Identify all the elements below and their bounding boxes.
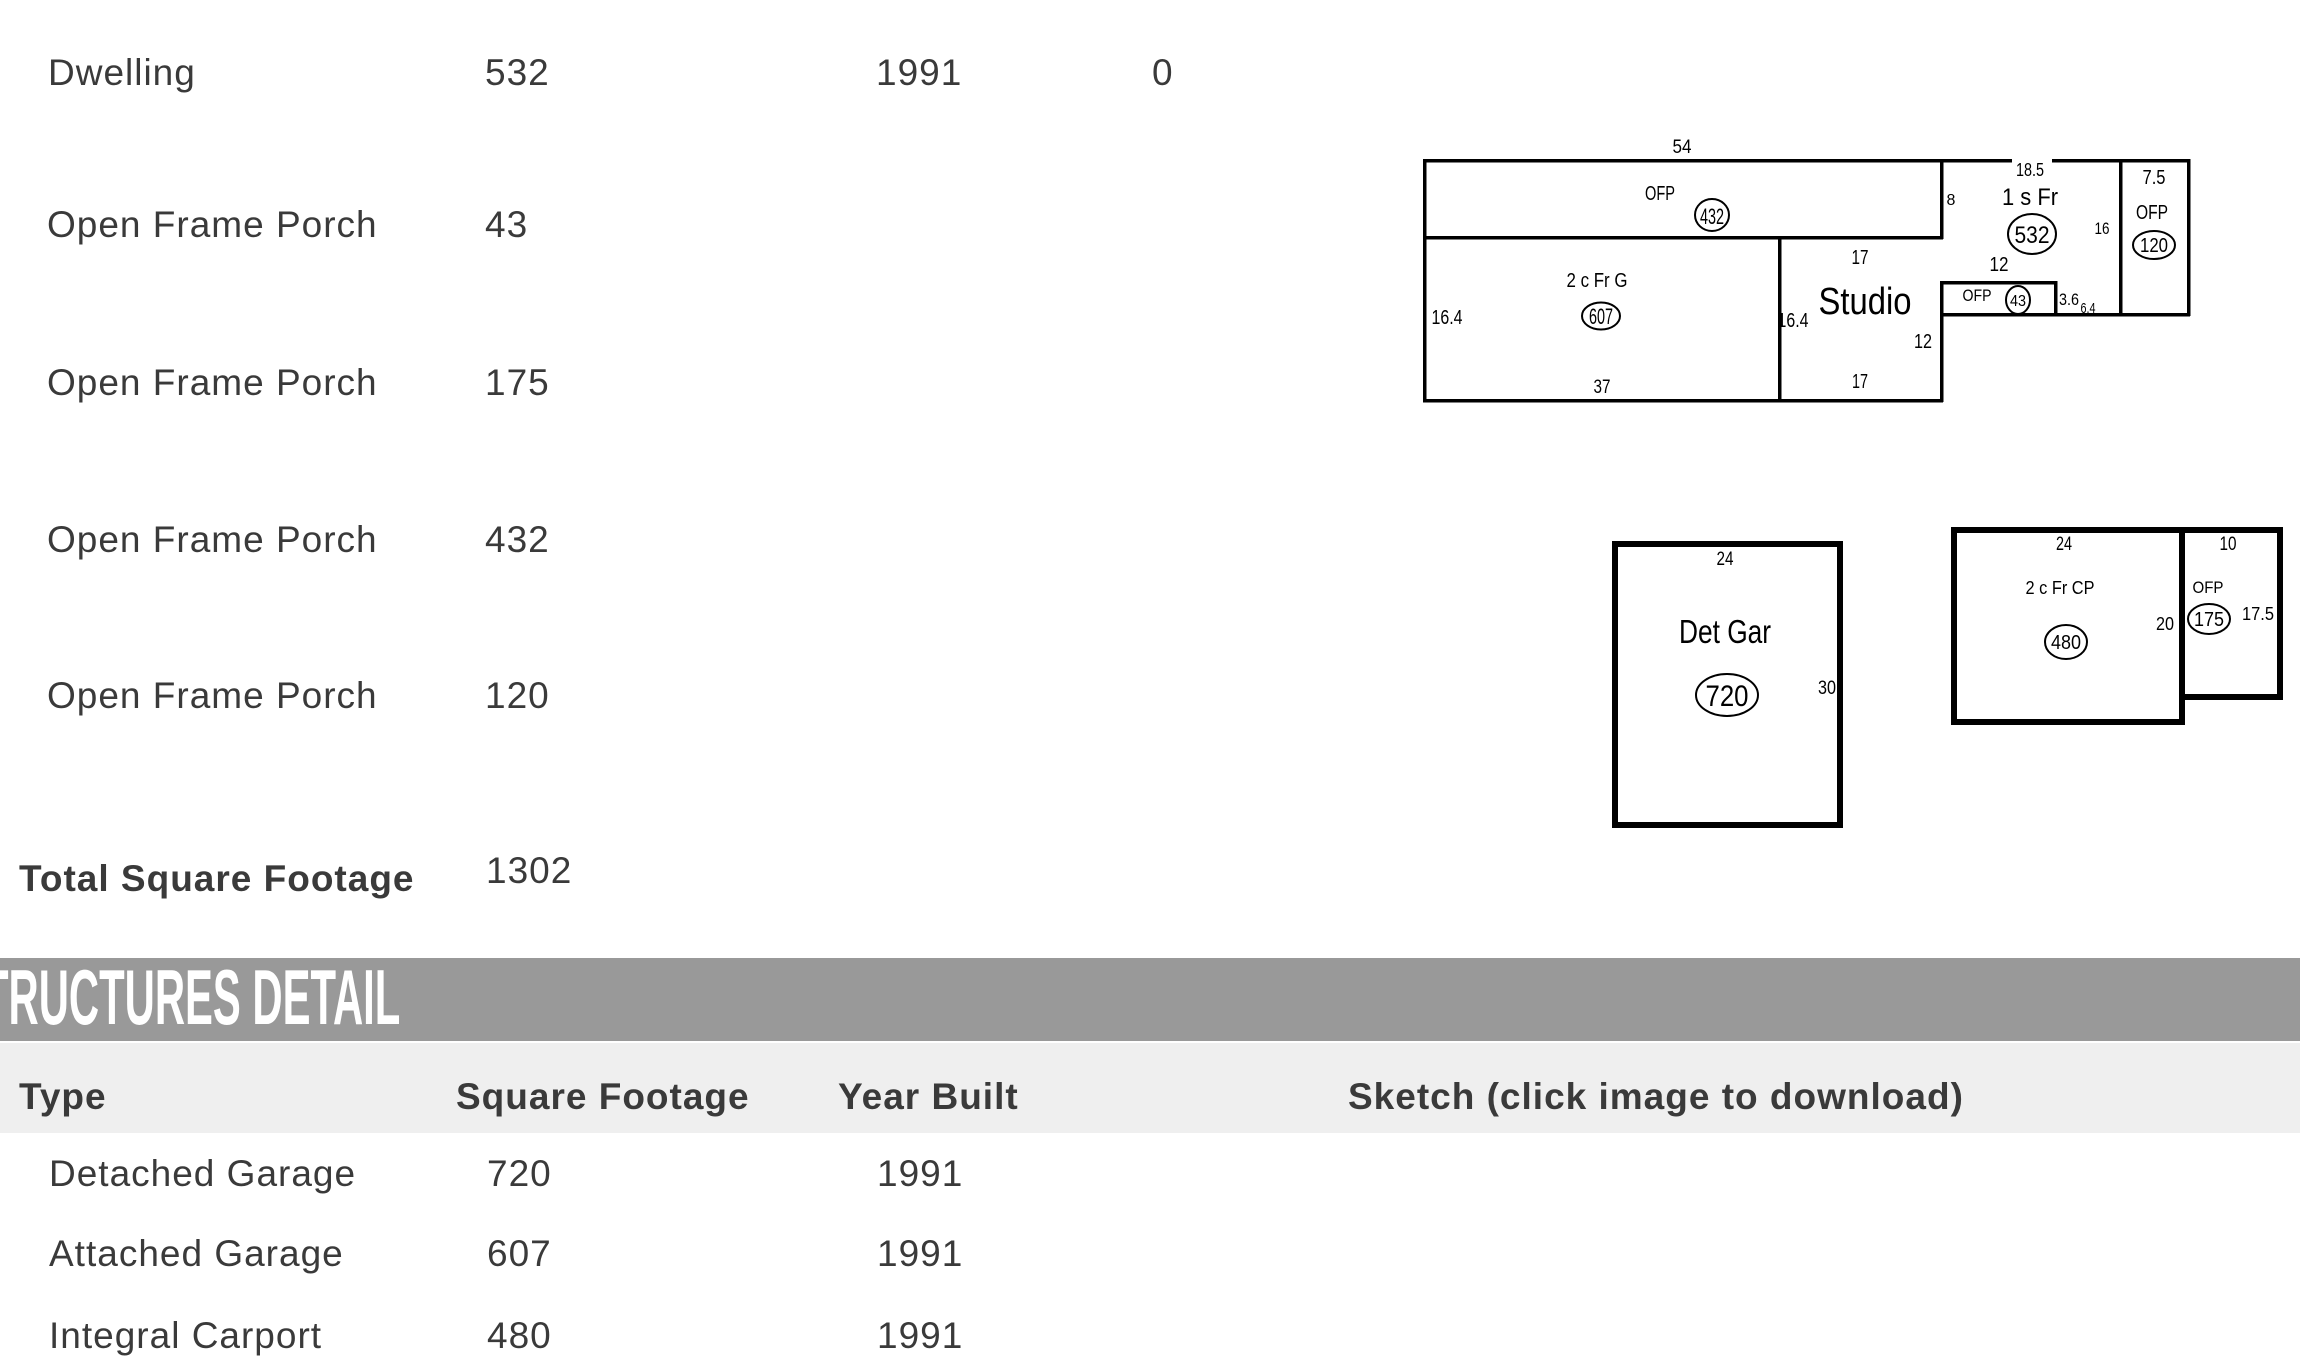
svg-text:OFP: OFP: [2193, 578, 2224, 597]
svg-text:18.5: 18.5: [2016, 160, 2044, 180]
svg-text:2 c Fr CP: 2 c Fr CP: [2026, 578, 2095, 598]
svg-text:1 s Fr: 1 s Fr: [2002, 184, 2058, 211]
svg-text:Det Gar: Det Gar: [1679, 613, 1771, 650]
svg-text:6.4: 6.4: [2081, 300, 2096, 317]
svg-text:OFP: OFP: [1963, 286, 1992, 305]
svg-text:OFP: OFP: [1645, 183, 1675, 205]
svg-text:2 c Fr G: 2 c Fr G: [1567, 270, 1628, 292]
svg-text:3.6: 3.6: [2059, 290, 2079, 309]
svg-text:24: 24: [2056, 534, 2072, 555]
svg-text:16.4: 16.4: [1432, 307, 1463, 329]
svg-text:54: 54: [1673, 137, 1692, 158]
svg-text:432: 432: [1700, 204, 1724, 229]
svg-text:30: 30: [1818, 678, 1836, 699]
svg-text:Studio: Studio: [1819, 281, 1912, 323]
svg-text:20: 20: [2156, 614, 2174, 634]
svg-text:17.5: 17.5: [2242, 604, 2274, 624]
svg-text:720: 720: [1706, 680, 1749, 713]
svg-text:17: 17: [1852, 247, 1869, 269]
svg-text:7.5: 7.5: [2143, 167, 2166, 189]
svg-text:OFP: OFP: [2136, 202, 2168, 224]
svg-text:37: 37: [1594, 377, 1611, 398]
svg-text:12: 12: [1914, 331, 1932, 353]
svg-text:16.4: 16.4: [1778, 310, 1809, 332]
svg-text:532: 532: [2015, 222, 2050, 249]
svg-text:43: 43: [2010, 293, 2026, 310]
svg-text:175: 175: [2194, 609, 2224, 631]
svg-text:8: 8: [1947, 192, 1956, 209]
svg-text:607: 607: [1589, 304, 1613, 329]
svg-text:10: 10: [2220, 534, 2237, 555]
svg-text:16: 16: [2095, 219, 2110, 238]
svg-text:480: 480: [2051, 632, 2081, 654]
svg-text:24: 24: [1717, 549, 1734, 570]
svg-text:120: 120: [2140, 235, 2168, 257]
svg-text:12: 12: [1990, 254, 2009, 276]
svg-text:17: 17: [1852, 371, 1868, 393]
